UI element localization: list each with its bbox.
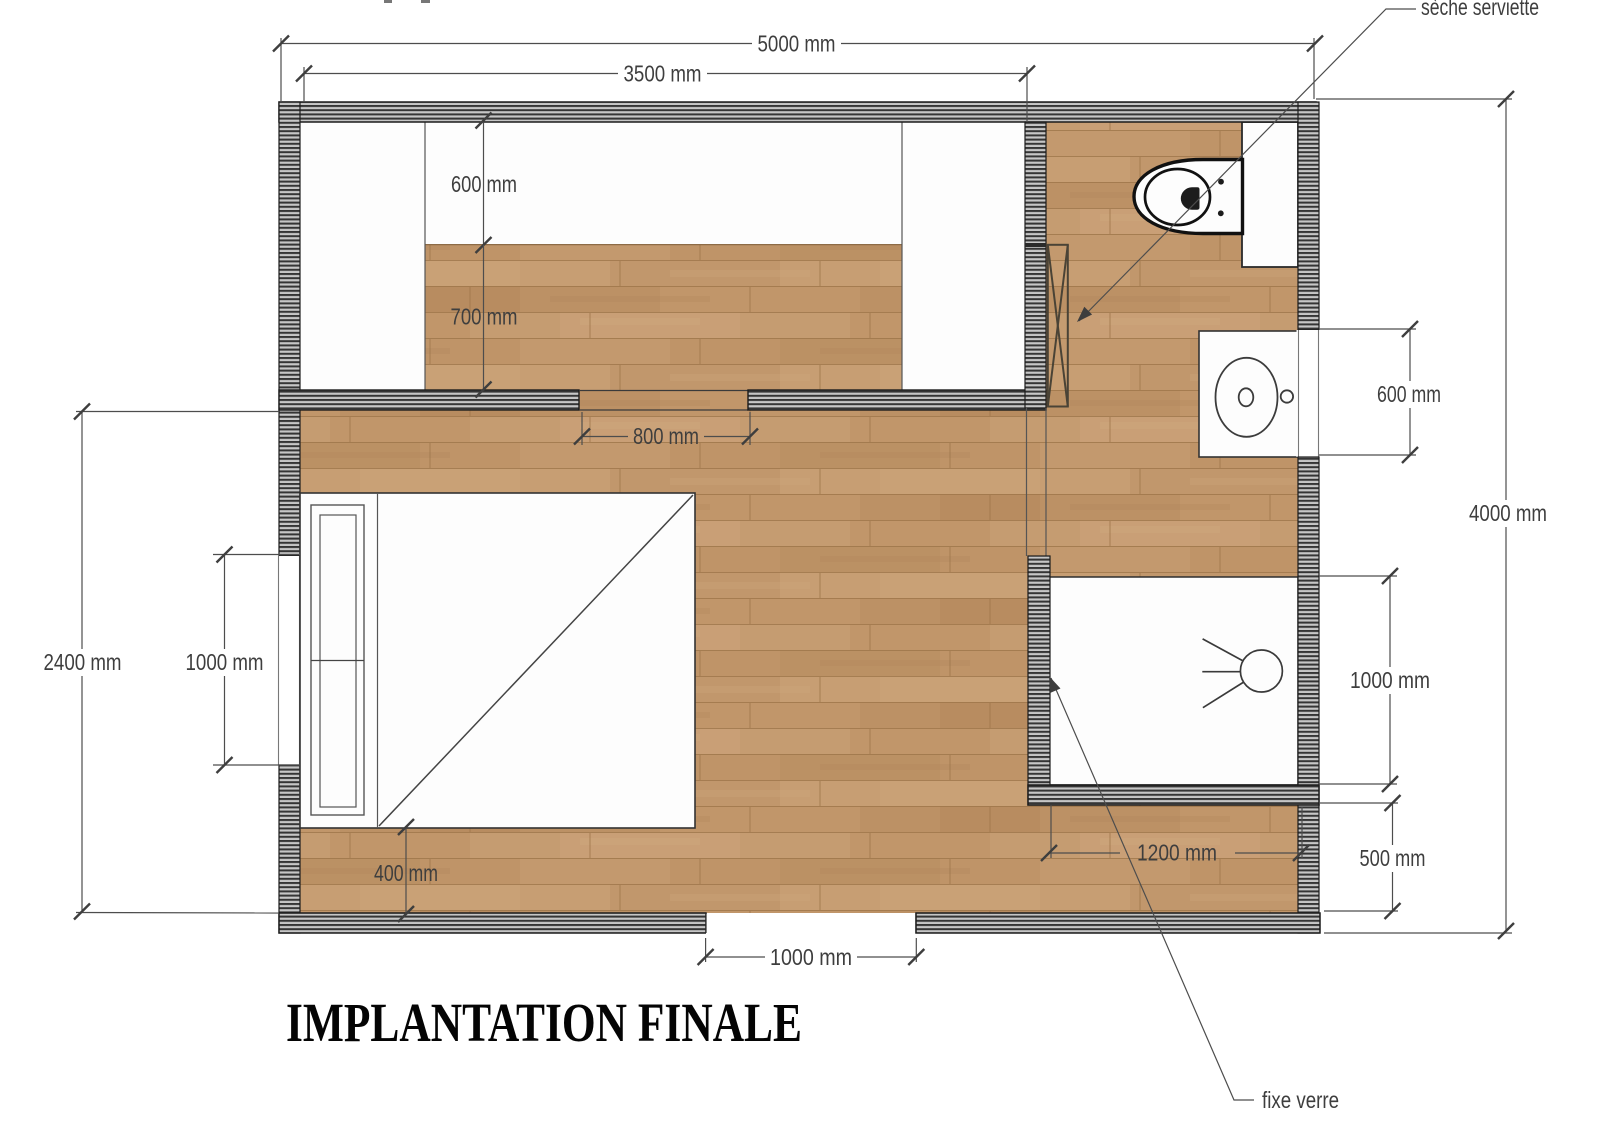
svg-text:600 mm: 600 mm xyxy=(451,171,517,197)
svg-text:1000 mm: 1000 mm xyxy=(1350,667,1430,693)
svg-text:600 mm: 600 mm xyxy=(1377,381,1441,407)
svg-text:1200 mm: 1200 mm xyxy=(1137,840,1217,866)
svg-text:500 mm: 500 mm xyxy=(1360,845,1426,871)
svg-text:400 mm: 400 mm xyxy=(374,860,438,886)
svg-text:4000 mm: 4000 mm xyxy=(1469,500,1547,526)
svg-text:800 mm: 800 mm xyxy=(633,423,699,449)
svg-text:fixe verre: fixe verre xyxy=(1262,1087,1339,1113)
svg-text:1000 mm: 1000 mm xyxy=(770,944,852,970)
svg-text:IMPLANTATION FINALE: IMPLANTATION FINALE xyxy=(286,992,802,1053)
svg-text:2400 mm: 2400 mm xyxy=(44,649,122,675)
svg-text:5000 mm: 5000 mm xyxy=(758,31,836,57)
svg-text:700 mm: 700 mm xyxy=(451,304,518,330)
svg-text:sèche serviette: sèche serviette xyxy=(1421,0,1539,20)
svg-text:1000 mm: 1000 mm xyxy=(186,649,264,675)
svg-text:3500 mm: 3500 mm xyxy=(624,61,702,87)
